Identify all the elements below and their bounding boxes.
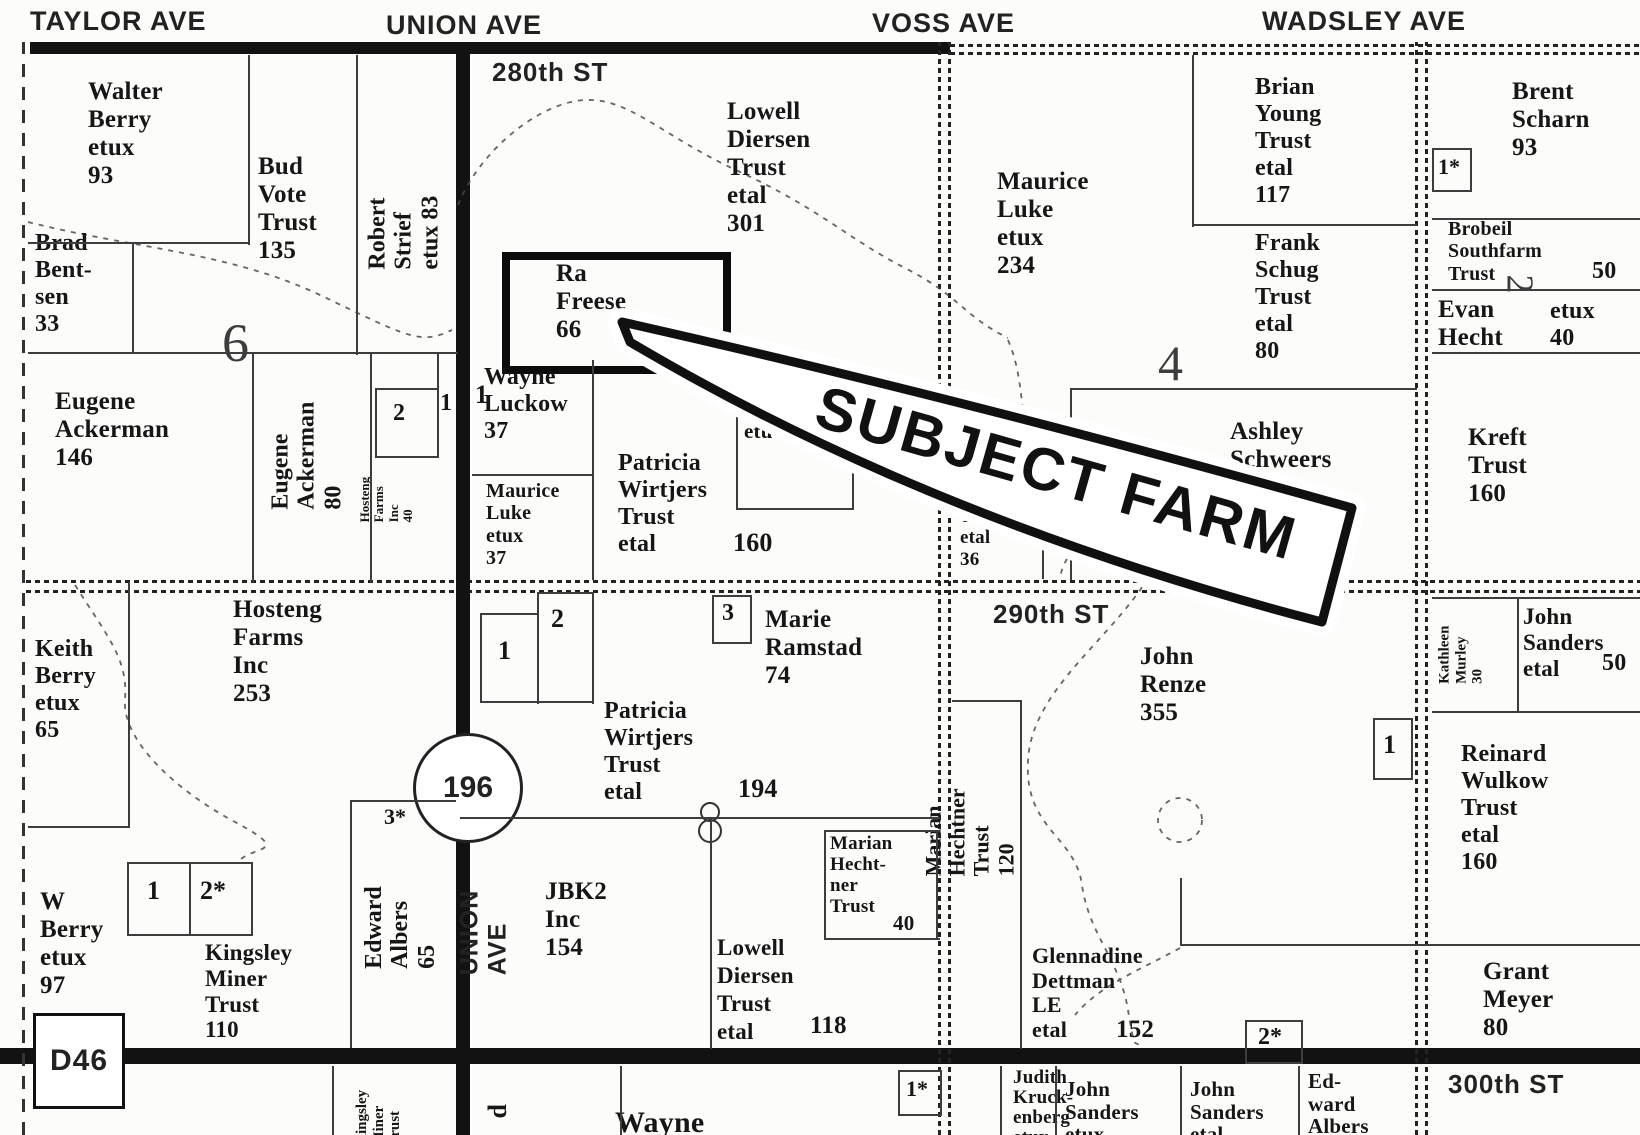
parcel-boundary-line: [480, 701, 594, 703]
parcel-boundary-line: [460, 817, 940, 819]
parcel-marker-m3star: 3*: [384, 804, 406, 830]
parcel-label-eugene-ackerman-146: Eugene Ackerman 146: [55, 388, 169, 472]
parcel-marker-m1star-bottom: 1*: [906, 1076, 928, 1102]
parcel-boundary-line: [1245, 1020, 1247, 1064]
parcel-boundary-line: [332, 1066, 334, 1135]
parcel-label-marian-hechtner-120: Marian Hechtner Trust 120: [920, 740, 1020, 925]
label-union-ave: UNION AVE: [386, 10, 542, 40]
parcel-label-kreft: Kreft Trust 160: [1468, 424, 1527, 508]
parcel-boundary-line: [370, 352, 372, 582]
parcel-label-edward-albers-bottom: Ed- ward Albers: [1308, 1070, 1369, 1135]
parcel-boundary-line: [375, 456, 439, 458]
parcel-boundary-line: [955, 503, 1043, 505]
parcel-label-brobeil: Brobeil Southfarm Trust: [1448, 218, 1542, 285]
parcel-label-lowell-diersen-301: Lowell Diersen Trust etal 301: [727, 98, 810, 238]
parcel-boundary-line: [132, 242, 134, 354]
parcel-label-keith-berry: Keith Berry etux 65: [35, 636, 96, 744]
parcel-boundary-line: [1432, 190, 1472, 192]
parcel-boundary-line: [28, 242, 250, 244]
parcel-boundary-line: [189, 862, 191, 936]
parcel-boundary-line: [127, 862, 129, 936]
parcel-boundary-line: [736, 390, 854, 392]
parcel-label-kingsley-partial: Kingsley Miner Trust: [346, 1048, 412, 1135]
parcel-label-edward-albers-65-text: Edward Albers 65: [360, 887, 439, 970]
parcel-label-robert-strief-text: Robert Strief etux 83: [364, 196, 443, 270]
parcel-boundary-line: [1470, 148, 1472, 192]
parcel-label-patricia-wirtjers-194: Patricia Wirtjers Trust etal: [604, 698, 693, 806]
parcel-boundary-line: [1298, 1066, 1300, 1135]
parcel-boundary-line: [1373, 778, 1413, 780]
parcel-boundary-line: [1192, 224, 1417, 226]
parcel-marker-m1b: 1: [475, 380, 488, 410]
parcel-label-hosteng-253: Hosteng Farms Inc 253: [233, 596, 322, 708]
parcel-boundary-line: [252, 352, 254, 582]
section-number-6: 6: [222, 312, 249, 374]
parcel-boundary-line: [852, 390, 854, 510]
parcel-boundary-line: [712, 595, 714, 644]
label-280th-st: 280th ST: [492, 58, 608, 87]
parcel-boundary-line: [898, 1070, 900, 1116]
parcel-boundary-line: [1020, 700, 1022, 1049]
parcel-boundary-line: [472, 474, 594, 476]
label-300th-st: 300th ST: [1448, 1070, 1564, 1099]
parcel-marker-m3-mid: 3: [722, 600, 734, 627]
parcel-boundary-line: [936, 830, 938, 940]
parcel-boundary-line: [736, 508, 854, 510]
parcel-label-glennadine-acres: 152: [1116, 1016, 1154, 1044]
parcel-label-marie-ramstad: Marie Ramstad 74: [765, 606, 862, 690]
parcel-boundary-line: [824, 830, 940, 832]
parcel-boundary-line: [824, 830, 826, 940]
parcel-boundary-line: [824, 938, 940, 940]
parcel-boundary-line: [537, 592, 539, 704]
label-wadsley-ave: WADSLEY AVE: [1262, 6, 1466, 36]
parcel-label-ra-freese: Ra Freese 66: [556, 260, 626, 344]
parcel-boundary-line: [1000, 1066, 1002, 1135]
parcel-marker-m2star-b: 2*: [1258, 1024, 1282, 1051]
parcel-label-eugene-ackerman-80: Eugene Ackerman 80: [260, 356, 354, 556]
road-top-gravel-1: [950, 44, 1640, 47]
parcel-label-ashley-schweers: Ashley Schweers 154: [1230, 418, 1332, 502]
parcel-marker-m1d: 1: [1383, 730, 1396, 760]
highway-196-marker: 196: [413, 733, 523, 843]
parcel-boundary-line: [712, 595, 752, 597]
parcel-label-marian-hechtner-40-acres: 40: [893, 912, 914, 936]
parcel-marker-m2star-a: 2*: [200, 876, 226, 906]
parcel-label-evan-hecht: Evan Hecht: [1438, 296, 1503, 352]
parcel-boundary-line: [1070, 390, 1072, 580]
parcel-label-kathleen-murley-text: Kathleen Murley 30: [1436, 626, 1486, 684]
parcel-boundary-line: [1373, 718, 1375, 780]
parcel-boundary-line: [1432, 597, 1640, 599]
parcel-label-maurice-luke-37: Maurice Luke etux 37: [486, 480, 560, 570]
parcel-label-lowell-diersen-118: Lowell Diersen Trust etal: [717, 934, 794, 1046]
parcel-boundary-line: [1245, 1062, 1303, 1064]
parcel-label-trust-36: Trust etal 36: [960, 506, 1005, 570]
parcel-boundary-line: [1180, 878, 1182, 946]
parcel-boundary-line: [710, 817, 712, 1049]
road-taylor-ave: [22, 42, 25, 1135]
parcel-label-patricia-wirtjers-160-acres: 160: [733, 528, 773, 557]
parcel-label-marian-hechtner-40: Marian Hecht- ner Trust: [830, 834, 892, 918]
label-taylor-ave: TAYLOR AVE: [30, 6, 207, 36]
parcel-boundary-line: [248, 55, 250, 245]
parcel-boundary-line: [1245, 1020, 1303, 1022]
parcel-label-john-sanders-etal: John Sanders etal: [1190, 1078, 1264, 1135]
parcel-label-wayne-luckow: Wayne Luckow 37: [484, 364, 568, 445]
parcel-label-patricia-wirtjers-194-acres: 194: [738, 774, 778, 803]
parcel-label-hosteng-40-text: Hosteng Farms Inc 40: [358, 477, 415, 523]
parcel-boundary-line: [1180, 1066, 1182, 1135]
parcel-boundary-line: [1432, 352, 1640, 354]
parcel-boundary-line: [437, 352, 439, 458]
parcel-boundary-line: [128, 582, 130, 828]
parcel-boundary-line: [1373, 718, 1413, 720]
parcel-boundary-line: [1432, 148, 1434, 192]
parcel-label-reinard-wulkow: Reinard Wulkow Trust etal 160: [1461, 741, 1548, 875]
label-290th-st: 290th ST: [993, 600, 1109, 629]
parcel-label-john-renze: John Renze 355: [1140, 643, 1206, 727]
parcel-boundary-line: [952, 700, 1022, 702]
parcel-boundary-line: [736, 390, 738, 510]
road-290th-st-2: [26, 590, 1640, 593]
parcel-boundary-line: [712, 642, 752, 644]
parcel-boundary-line: [537, 592, 594, 594]
parcel-boundary-line: [1517, 597, 1519, 713]
parcel-label-frank-schug: Frank Schug Trust etal 80: [1255, 230, 1320, 364]
county-road-d46-sign: D46: [33, 1013, 125, 1109]
parcel-boundary-line: [1180, 944, 1640, 946]
parcel-boundary-line: [1055, 1066, 1057, 1135]
parcel-label-john-sanders-etux: John Sanders etux: [1065, 1078, 1139, 1135]
parcel-label-kathleen-murley: Kathleen Murley 30: [1435, 596, 1487, 714]
parcel-boundary-line: [592, 592, 594, 704]
parcel-label-brian-young: Brian Young Trust etal 117: [1255, 74, 1321, 208]
parcel-label-patricia-wirtjers-160: Patricia Wirtjers Trust etal: [618, 450, 707, 558]
parcel-boundary-line: [1432, 289, 1640, 291]
road-290th-st-1: [26, 580, 1640, 583]
parcel-label-brad-bentsen: Brad Bent- sen 33: [35, 230, 92, 338]
parcel-boundary-line: [1432, 218, 1640, 220]
parcel-boundary-line: [480, 613, 482, 703]
parcel-boundary-line: [127, 934, 253, 936]
parcel-marker-m1c: 1: [147, 876, 160, 906]
label-voss-ave: VOSS AVE: [872, 8, 1015, 38]
parcel-boundary-line: [375, 388, 377, 458]
parcel-boundary-line: [480, 613, 539, 615]
parcel-label-d-fragment-text: d: [484, 1104, 513, 1118]
parcel-label-w-berry: W Berry etux 97: [40, 888, 103, 1000]
parcel-label-obscured-owner: L etu: [744, 396, 773, 443]
parcel-label-kingsley-partial-text: Kingsley Miner Trust: [354, 1090, 404, 1135]
label-union-ave-vertical: UNION AVE: [466, 842, 502, 1022]
road-voss-ave-1: [938, 42, 941, 1135]
parcel-label-bud-vote: Bud Vote Trust 135: [258, 153, 317, 265]
parcel-marker-m1-mid: 1: [498, 636, 511, 666]
parcel-label-brent-scharn: Brent Scharn 93: [1512, 78, 1590, 162]
parcel-boundary-line: [28, 826, 130, 828]
parcel-boundary-line: [28, 352, 458, 354]
parcel-label-eugene-ackerman-80-text: Eugene Ackerman 80: [267, 402, 346, 510]
parcel-label-edward-albers-65: Edward Albers 65: [352, 843, 448, 1013]
parcel-boundary-line: [940, 1070, 942, 1116]
road-voss-ave-2: [948, 42, 951, 1135]
parcel-boundary-line: [350, 800, 456, 802]
parcel-boundary-line: [1432, 148, 1472, 150]
parcel-boundary-line: [620, 1066, 622, 1135]
parcel-label-maurice-luke-234: Maurice Luke etux 234: [997, 168, 1089, 280]
road-top-gravel-2: [950, 52, 1640, 55]
parcel-label-john-sanders-50-acres: 50: [1602, 650, 1626, 677]
parcel-boundary-line: [898, 1070, 942, 1072]
parcel-label-lowell-diersen-118-acres: 118: [810, 1012, 847, 1040]
road-300th-st: [0, 1048, 1640, 1064]
parcel-boundary-line: [1432, 711, 1640, 713]
parcel-boundary-line: [1301, 1020, 1303, 1064]
section-number-4: 4: [1158, 334, 1183, 392]
parcel-boundary-line: [1192, 55, 1194, 227]
parcel-boundary-line: [898, 1114, 942, 1116]
parcel-boundary-line: [1411, 718, 1413, 780]
parcel-label-wayne-partial: Wayne: [615, 1106, 704, 1135]
parcel-boundary-line: [350, 800, 352, 1048]
parcel-label-kingsley-110: Kingsley Miner Trust 110: [205, 940, 292, 1043]
parcel-label-robert-strief: Robert Strief etux 83: [350, 128, 458, 338]
parcel-boundary-line: [375, 388, 439, 390]
parcel-boundary-line: [1070, 388, 1417, 390]
parcel-label-walter-berry: Walter Berry etux 93: [88, 78, 163, 190]
road-280th-st: [30, 42, 950, 54]
parcel-marker-m1a: 1: [440, 390, 452, 417]
plat-map: TAYLOR AVE UNION AVE VOSS AVE WADSLEY AV…: [0, 0, 1640, 1135]
parcel-boundary-line: [750, 595, 752, 644]
parcel-marker-m2-mid: 2: [551, 604, 564, 634]
parcel-boundary-line: [356, 55, 358, 355]
road-wadsley-ave-1: [1415, 42, 1418, 1135]
parcel-label-hosteng-40: Hosteng Farms Inc 40: [360, 446, 414, 554]
parcel-label-brobeil-acres: 50: [1592, 258, 1616, 285]
parcel-boundary-line: [1042, 503, 1044, 579]
parcel-label-jbk2: JBK2 Inc 154: [545, 878, 607, 962]
parcel-boundary-line: [251, 862, 253, 936]
road-wadsley-ave-2: [1425, 42, 1428, 1135]
parcel-label-grant-meyer: Grant Meyer 80: [1483, 958, 1553, 1042]
parcel-marker-m1star-top: 1*: [1438, 154, 1460, 180]
parcel-boundary-line: [592, 360, 594, 580]
parcel-marker-m2a: 2: [393, 400, 405, 427]
parcel-label-d-fragment: d: [483, 1088, 513, 1134]
parcel-label-john-sanders-50: John Sanders etal: [1523, 604, 1604, 681]
parcel-label-evan-hecht-col2: etux 40: [1550, 298, 1595, 352]
